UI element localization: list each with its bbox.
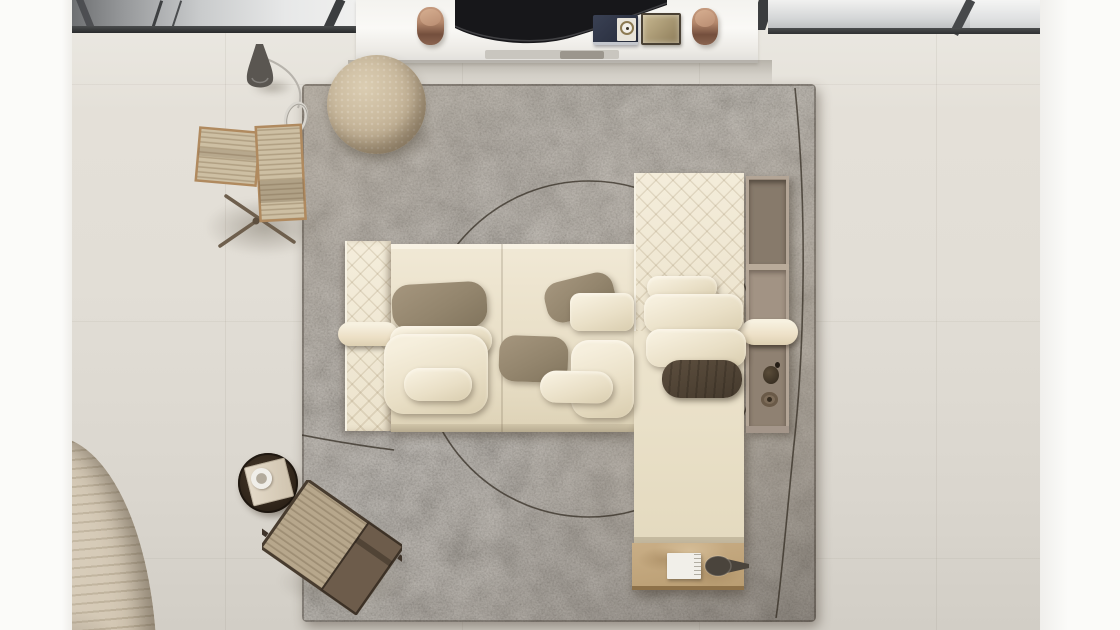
- sofa-seat-seam: [501, 244, 503, 432]
- copper-canister-right: [692, 8, 718, 45]
- round-dish: [761, 392, 778, 407]
- right-wall-band: [1040, 0, 1120, 630]
- cone-table-lamp: [703, 551, 753, 581]
- skylight-mullion: [172, 0, 182, 26]
- clock-face: [620, 21, 634, 35]
- woven-stool: [262, 480, 402, 615]
- shelf-bottom-lip: [746, 426, 789, 433]
- shelf-compartment-bottom: [749, 344, 786, 426]
- pillow-chaise-mid: [644, 294, 743, 333]
- wood-shelf-unit: [746, 176, 789, 433]
- skylight-glass-panel: [970, 0, 1040, 28]
- pillow-stack-center: [570, 293, 634, 331]
- sofa-front-lip: [391, 424, 634, 432]
- skylight-frame-bar: [768, 28, 1040, 34]
- bronze-box: [641, 13, 681, 45]
- console-recess-inner: [560, 51, 604, 59]
- skylight-right: [768, 0, 1040, 34]
- shelf-compartment-middle: [749, 270, 786, 320]
- dark-vase: [763, 366, 779, 384]
- woven-lounge-chair: [192, 120, 322, 255]
- skylight-left: [72, 0, 357, 33]
- pillow-lumbar-center: [540, 370, 614, 403]
- book-stack-with-clock: [593, 15, 638, 45]
- sofa-back-highlight: [391, 244, 634, 249]
- left-wall-band: [0, 0, 72, 630]
- pillow-brown-left: [391, 281, 488, 332]
- dark-bolster-cushion: [662, 360, 742, 398]
- copper-canister-left: [417, 7, 444, 45]
- armrest-bolster-right: [741, 319, 798, 345]
- skylight-mullion: [152, 0, 163, 27]
- shelf-compartment-top: [749, 180, 786, 264]
- skylight-frame-bar: [72, 26, 357, 33]
- white-book: [667, 553, 701, 579]
- living-room-scene: [0, 0, 1120, 630]
- pillow-lumbar-left: [404, 368, 472, 401]
